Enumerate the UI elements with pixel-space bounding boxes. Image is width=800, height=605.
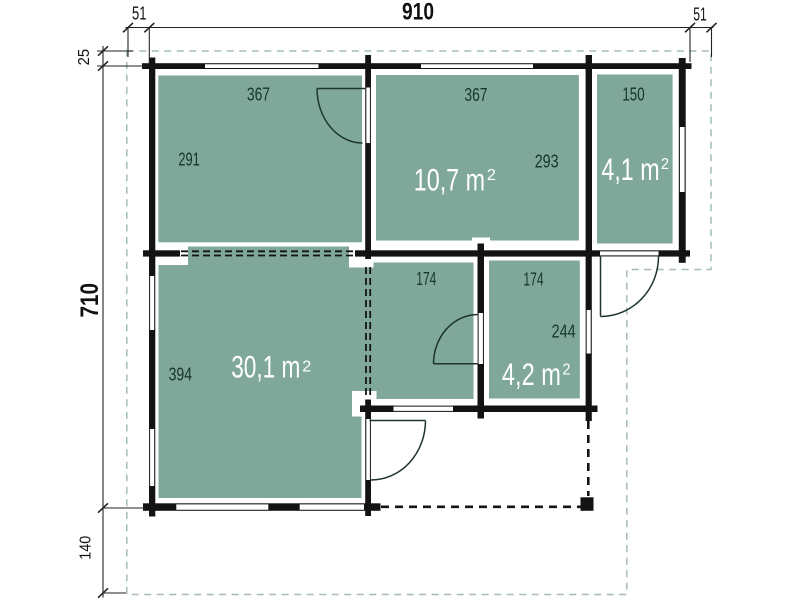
svg-text:174: 174 xyxy=(523,268,543,289)
svg-text:2: 2 xyxy=(661,156,669,173)
svg-text:150: 150 xyxy=(622,84,644,105)
svg-text:710: 710 xyxy=(76,283,104,318)
svg-text:51: 51 xyxy=(132,4,147,24)
svg-text:293: 293 xyxy=(535,150,559,171)
svg-text:244: 244 xyxy=(552,320,576,341)
svg-text:2: 2 xyxy=(302,359,311,376)
svg-text:4,2 m: 4,2 m xyxy=(502,356,561,392)
svg-text:51: 51 xyxy=(693,5,707,25)
svg-text:174: 174 xyxy=(416,268,436,289)
svg-text:10,7 m: 10,7 m xyxy=(414,162,485,198)
svg-text:367: 367 xyxy=(464,84,487,105)
svg-text:291: 291 xyxy=(178,149,199,170)
svg-text:4,1 m: 4,1 m xyxy=(601,151,659,187)
svg-text:2: 2 xyxy=(487,167,496,184)
svg-text:910: 910 xyxy=(402,0,434,26)
svg-text:367: 367 xyxy=(247,83,270,104)
svg-text:25: 25 xyxy=(76,49,93,66)
svg-text:394: 394 xyxy=(169,364,192,385)
svg-text:30,1 m: 30,1 m xyxy=(231,349,300,385)
svg-text:140: 140 xyxy=(77,536,94,560)
svg-text:2: 2 xyxy=(563,362,571,379)
